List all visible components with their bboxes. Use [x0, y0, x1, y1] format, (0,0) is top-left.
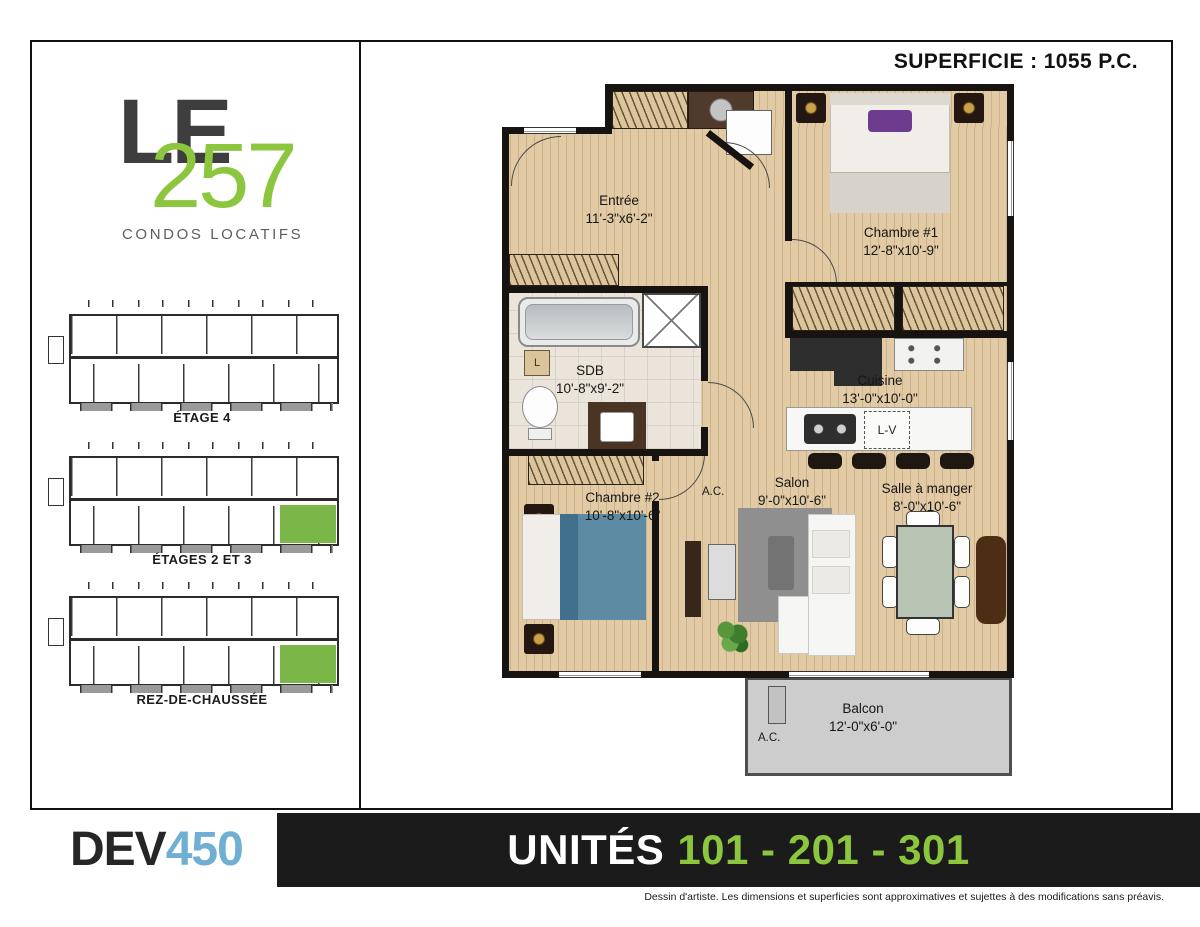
stairwell [48, 336, 64, 364]
wall-segment [895, 286, 902, 331]
dining-table [896, 525, 954, 619]
stairwell [48, 478, 64, 506]
building-outline [69, 456, 339, 546]
sofa-cushion [812, 530, 850, 558]
nightstand [524, 624, 554, 654]
room-label-entree: Entrée 11'-3"x6'-2" [537, 192, 701, 227]
bar-stool [852, 453, 886, 469]
building-outline [69, 314, 339, 404]
stove [894, 338, 964, 371]
units-banner-numbers: 101 - 201 - 301 [677, 826, 969, 874]
bar-stool [808, 453, 842, 469]
bathtub [518, 297, 640, 347]
bedroom1-closet [792, 286, 895, 331]
entry-closet [509, 254, 619, 286]
developer-logo-part2: 450 [166, 823, 243, 876]
unit-divider-lines [71, 458, 337, 496]
wall-segment [785, 284, 792, 338]
floor-plan: L L-V [502, 84, 1014, 684]
blanket [830, 172, 950, 213]
headboard [830, 93, 950, 105]
mini-plan-etage-4: ÉTAGE 4 [57, 306, 347, 432]
wall-segment [502, 449, 708, 456]
developer-logo-part1: DEV [70, 823, 166, 876]
corridor-line [71, 498, 337, 501]
kitchen-sink [804, 414, 856, 444]
dining-chair [954, 576, 970, 608]
units-banner-prefix: UNITÉS [507, 826, 664, 874]
wall-segment [502, 127, 509, 678]
closet [612, 91, 688, 129]
coffee-table [768, 536, 794, 590]
sofa-cushion [812, 566, 850, 594]
window [559, 671, 641, 678]
developer-logo: DEV450 [70, 822, 243, 877]
dishwasher: L-V [864, 411, 910, 449]
wall-segment [785, 91, 792, 241]
room-label-chambre2: Chambre #2 10'-8"x10'-6" [540, 489, 705, 524]
mini-plan-caption: ÉTAGES 2 ET 3 [57, 552, 347, 567]
page: SUPERFICIE : 1055 P.C. LE 257 CONDOS LOC… [0, 0, 1200, 927]
room-label-sdb: SDB 10'-8"x9'-2" [517, 362, 663, 397]
balcony: A.C. Balcon 12'-0"x6'-0" [745, 677, 1012, 776]
nightstand [796, 93, 826, 123]
window [1007, 141, 1014, 216]
dining-chair [954, 536, 970, 568]
ac-label-hall: A.C. [702, 486, 742, 498]
balcony-bumps [75, 442, 329, 449]
bed-2-pillows [522, 514, 562, 620]
mini-plan-etages-2-3: ÉTAGES 2 ET 3 [57, 448, 347, 574]
ac-closet-unit [708, 544, 736, 600]
pillow [868, 110, 912, 132]
bar-stool [896, 453, 930, 469]
panel-divider [359, 40, 361, 810]
bedroom2-closet [528, 453, 644, 485]
highlighted-unit [280, 505, 336, 543]
superficie-label: SUPERFICIE : 1055 P.C. [894, 50, 1138, 74]
corridor-line [71, 356, 337, 359]
room-label-balcon: Balcon 12'-0"x6'-0" [783, 700, 943, 735]
mini-plan-rez-de-chaussee: REZ-DE-CHAUSSÉE [57, 588, 347, 714]
plant [712, 616, 752, 656]
patio-door [789, 671, 929, 678]
balcony-bumps [75, 582, 329, 589]
unit-divider-lines [71, 598, 337, 636]
wall-segment [605, 84, 1014, 91]
logo-subtitle: CONDOS LOCATIFS [122, 226, 303, 243]
room-label-cuisine: Cuisine 13'-0"x10'-0" [797, 372, 963, 407]
mini-plan-caption: REZ-DE-CHAUSSÉE [57, 692, 347, 707]
balcony-bumps [75, 300, 329, 307]
wall-segment [652, 449, 659, 461]
units-banner: UNITÉS 101 - 201 - 301 [277, 813, 1200, 887]
window [524, 127, 576, 134]
wall-segment [701, 286, 708, 381]
unit-divider-lines [71, 364, 337, 402]
brand-logo: LE 257 CONDOS LOCATIFS [118, 86, 348, 256]
building-outline [69, 596, 339, 686]
corridor-line [71, 638, 337, 641]
wall-segment [652, 501, 659, 671]
bed-runner [560, 514, 578, 620]
room-label-salon: Salon 9'-0"x10'-6" [732, 474, 852, 509]
bathroom-sink [600, 412, 634, 442]
wall-segment [502, 286, 708, 293]
window [1007, 362, 1014, 440]
disclaimer-text: Dessin d'artiste. Les dimensions et supe… [644, 891, 1164, 903]
logo-number-text: 257 [150, 130, 295, 222]
nightstand [954, 93, 984, 123]
room-label-salle-a-manger: Salle à manger 8'-0"x10'-6" [844, 480, 1010, 515]
sideboard [976, 536, 1006, 624]
dining-chair [906, 618, 940, 635]
unit-divider-lines [71, 316, 337, 354]
bar-stool [940, 453, 974, 469]
stairwell [48, 618, 64, 646]
mini-plan-caption: ÉTAGE 4 [57, 410, 347, 425]
wall-segment [785, 331, 1014, 338]
toilet-tank [528, 428, 552, 440]
tv-unit [685, 541, 701, 617]
highlighted-unit [280, 645, 336, 683]
bedroom1-closet [902, 286, 1004, 331]
shower [642, 293, 701, 348]
room-label-chambre1: Chambre #1 12'-8"x10'-9" [817, 224, 985, 259]
